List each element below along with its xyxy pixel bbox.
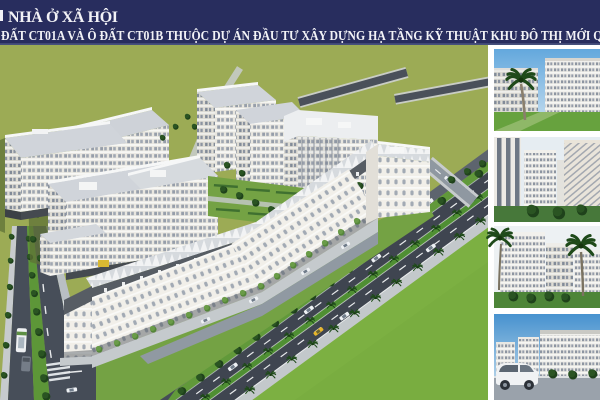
svg-text:NHÀ Ở XÃ HỘI: NHÀ Ở XÃ HỘI <box>8 7 118 26</box>
svg-text:ĐẤT CT01A VÀ Ô ĐẤT CT01B THUỘC: ĐẤT CT01A VÀ Ô ĐẤT CT01B THUỘC DỰ ÁN ĐẦU… <box>1 28 600 43</box>
